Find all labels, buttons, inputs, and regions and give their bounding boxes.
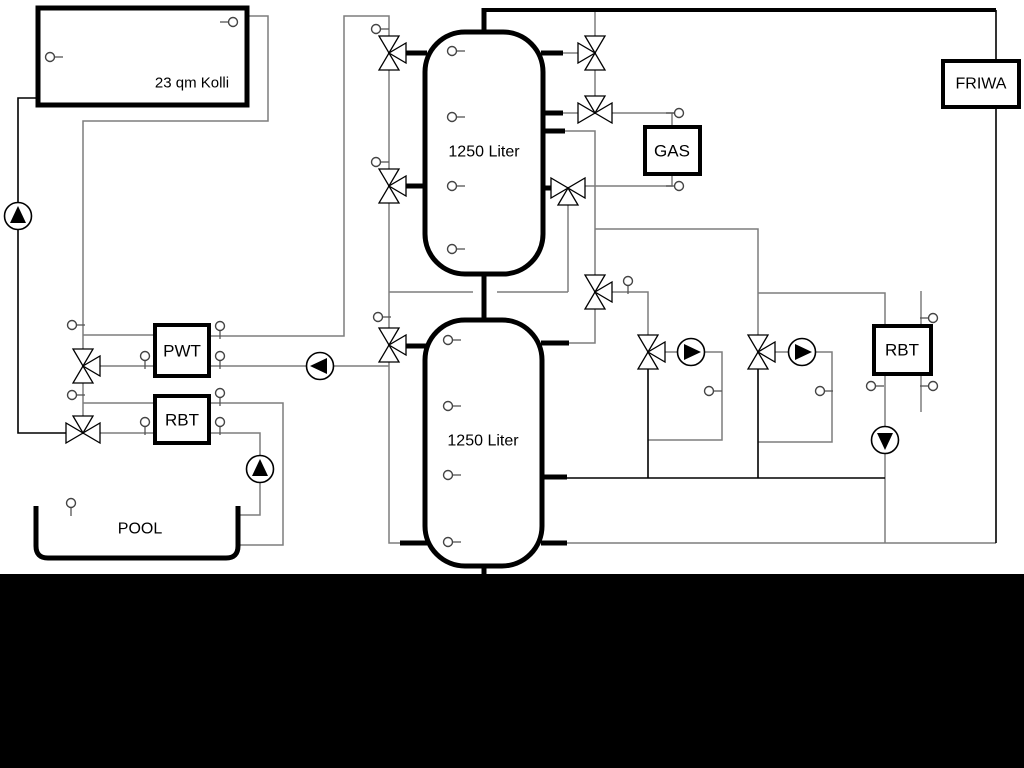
- pipe: [389, 362, 400, 543]
- temperature-sensor-icon: [374, 313, 383, 322]
- temperature-sensor-icon: [444, 402, 453, 411]
- buffer-tank-2-label: 1250 Liter: [447, 433, 519, 450]
- temperature-sensor-icon: [46, 53, 55, 62]
- bottom-black-panel: [0, 574, 1024, 768]
- temperature-sensor-icon: [141, 352, 150, 361]
- temperature-sensor-icon: [444, 336, 453, 345]
- temperature-sensor-icon: [448, 182, 457, 191]
- pool-label: POOL: [118, 521, 163, 538]
- collector-label: 23 qm Kolli: [155, 75, 229, 92]
- pipe: [648, 352, 722, 440]
- temperature-sensor-icon: [448, 47, 457, 56]
- buffer-tank-1-label: 1250 Liter: [448, 144, 520, 161]
- temperature-sensor-icon: [216, 322, 225, 331]
- pipe: [18, 98, 38, 203]
- pwt-label: PWT: [163, 342, 201, 361]
- pipe: [612, 292, 648, 335]
- temperature-sensor-icon: [816, 387, 825, 396]
- hydraulic-diagram: 1250 Liter1250 Liter23 qm KolliPWTRBTGAS…: [0, 0, 1024, 768]
- temperature-sensor-icon: [67, 499, 76, 508]
- pipe: [209, 433, 260, 456]
- gas-label: GAS: [654, 142, 690, 161]
- pipe: [758, 352, 832, 442]
- temperature-sensor-icon: [141, 418, 150, 427]
- temperature-sensor-icon: [705, 387, 714, 396]
- pipe: [18, 229, 67, 433]
- hydraulic-scheme-page: 1250 Liter1250 Liter23 qm KolliPWTRBTGAS…: [0, 0, 1024, 768]
- temperature-sensor-icon: [216, 389, 225, 398]
- temperature-sensor-icon: [675, 182, 684, 191]
- rbt-left-label: RBT: [165, 411, 199, 430]
- temperature-sensor-icon: [216, 352, 225, 361]
- temperature-sensor-icon: [372, 158, 381, 167]
- pipe: [758, 293, 885, 326]
- temperature-sensor-icon: [444, 471, 453, 480]
- pipe: [595, 229, 758, 335]
- temperature-sensor-icon: [929, 382, 938, 391]
- pipe: [238, 482, 260, 515]
- temperature-sensor-icon: [624, 277, 633, 286]
- temperature-sensor-icon: [372, 25, 381, 34]
- temperature-sensor-icon: [867, 382, 876, 391]
- temperature-sensor-icon: [444, 538, 453, 547]
- temperature-sensor-icon: [216, 418, 225, 427]
- temperature-sensor-icon: [448, 113, 457, 122]
- temperature-sensor-icon: [229, 18, 238, 27]
- temperature-sensor-icon: [68, 391, 77, 400]
- friwa-label: FRIWA: [956, 76, 1007, 93]
- temperature-sensor-icon: [929, 314, 938, 323]
- temperature-sensor-icon: [448, 245, 457, 254]
- pipe: [569, 309, 595, 343]
- temperature-sensor-icon: [675, 109, 684, 118]
- rbt-right-label: RBT: [885, 341, 919, 360]
- temperature-sensor-icon: [68, 321, 77, 330]
